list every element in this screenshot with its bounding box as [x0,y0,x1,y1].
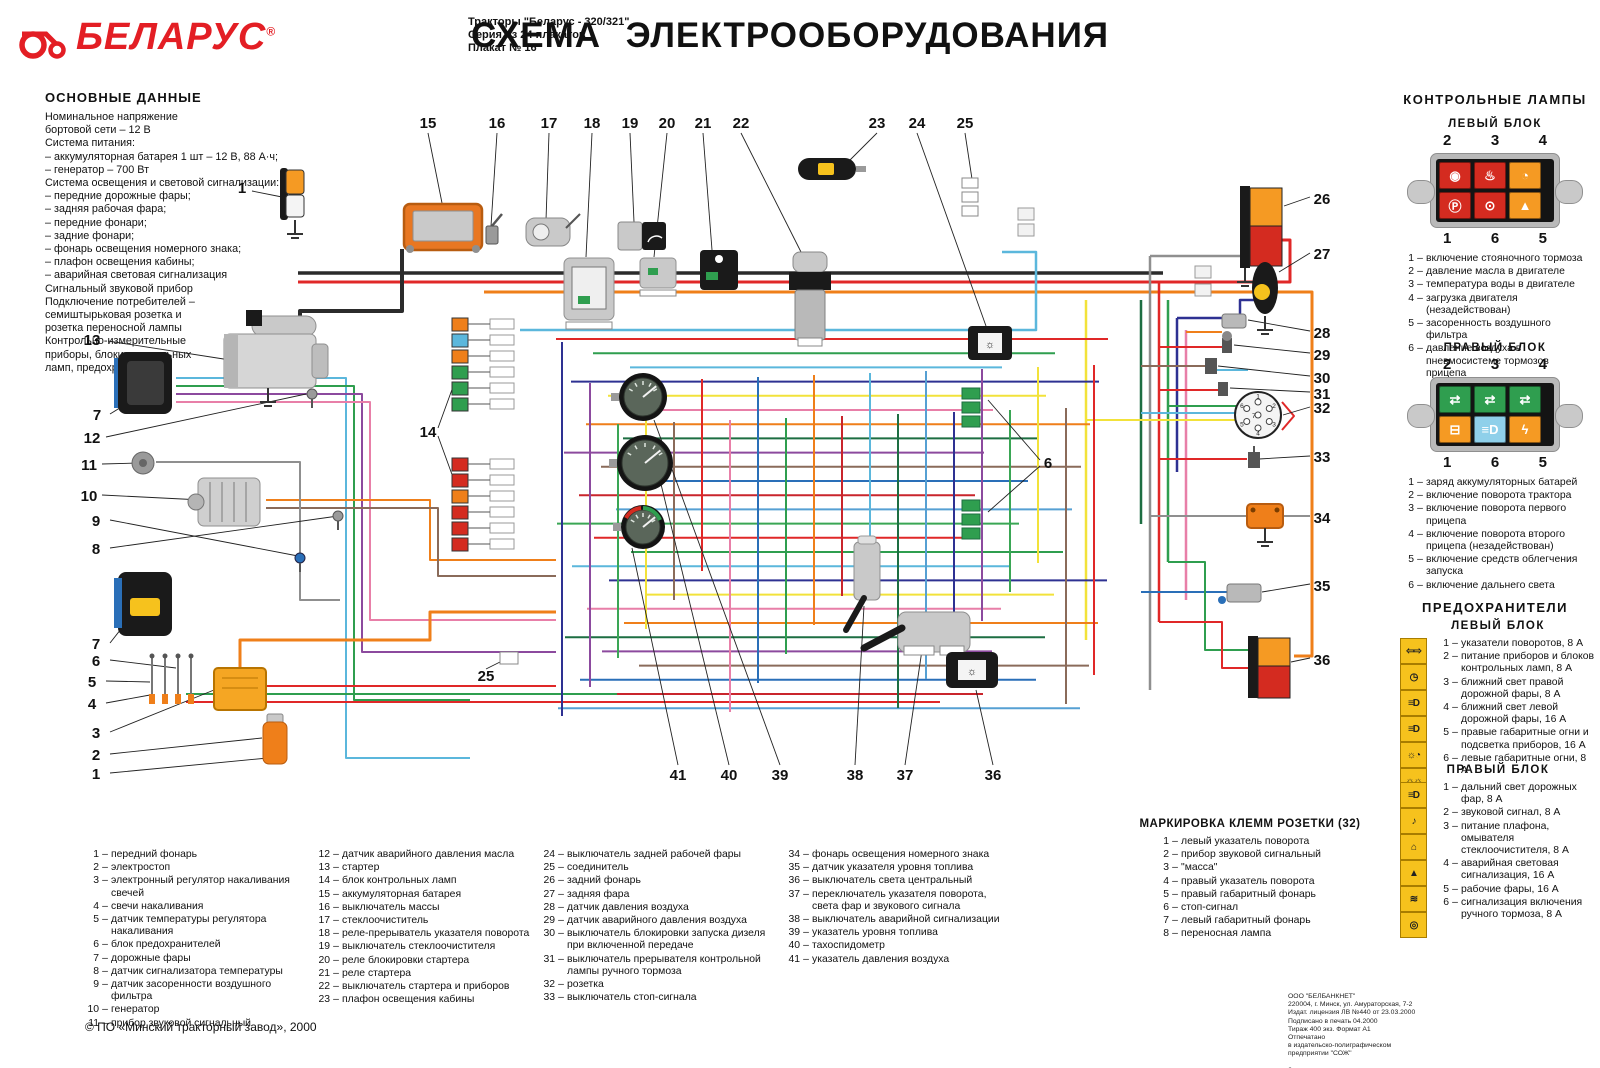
legend-item: 7–левый габаритный фонарь [1155,915,1345,927]
legend-item: 26–задний фонарь [541,875,769,887]
trailer1-turn-lamp: ⇄ [1474,386,1506,413]
legend-item: 32–розетка [541,979,769,991]
legend-item: 6–стоп-сигнал [1155,902,1345,914]
high-beam-lamp: ≡D [1474,416,1506,443]
lamp-number: 3 [1491,356,1499,373]
callout-number: 15 [420,115,437,132]
air-pressure-gauge-41 [613,505,665,549]
callout-number: 3 [92,725,100,742]
cl-left-numbers-bottom: 165 [1443,230,1547,247]
svg-text:1: 1 [1256,394,1260,401]
callout-number: 26 [1314,191,1331,208]
wires [156,240,1312,758]
svg-text:6: 6 [1240,403,1244,410]
legend-item: 34–фонарь освещения номерного знака [786,849,1014,861]
callout-number: 2 [92,747,100,764]
socket-marking-block: МАРКИРОВКА КЛЕММ РОЗЕТКИ (32) 1–левый ук… [1120,818,1380,942]
callout-number: 13 [84,332,101,349]
callout-number: 16 [489,115,506,132]
horn-11 [132,452,154,474]
trailer-air-pressure-lamp: ⊙ [1474,192,1506,219]
lamp-number: 2 [1443,356,1451,373]
lamp-number: 6 [1491,230,1499,247]
legend-item: 3–"масса" [1155,862,1345,874]
gear-lock-switch-30 [1205,358,1217,374]
legend-item: 14–блок контрольных ламп [316,875,544,887]
battery-15 [404,204,482,253]
legend-item: 3–ближний свет правой дорожной фары, 8 А [1435,677,1596,701]
starter-lock-relay-20 [640,258,676,296]
text-line: Издат. лицензия ЛВ №440 от 23.03.2000 [1288,1009,1508,1017]
socket-marking-items: 1–левый указатель поворота2–прибор звуко… [1155,836,1345,941]
legend-item: 1–заряд аккумуляторных батарей [1400,477,1590,489]
lamp-number: 1 [1443,230,1451,247]
callout-number: 23 [869,115,886,132]
harness-connector [1018,208,1034,220]
cl-right-cells: ⇄⇄⇄⊟≡Dϟ [1436,383,1554,446]
legend-col-4: 34–фонарь освещения номерного знака35–да… [786,849,1014,967]
callout-number: 28 [1314,325,1331,342]
fuel-gauge-39 [611,373,667,421]
legend-item: 2–питание приборов и блоков контрольных … [1435,651,1596,675]
socket-32: 1234567 [1235,392,1281,438]
callout-number: 14 [420,424,437,441]
legend-item: 1–передний фонарь [85,849,313,861]
svg-text:2: 2 [1272,403,1276,410]
legend-item: 23–плафон освещения кабины [316,994,544,1006]
legend-item: 35–датчик указателя уровня топлива [786,862,1014,874]
glow-plugs-4 [149,654,194,705]
tractor-turn-lamp: ⇄ [1439,386,1471,413]
svg-text:5: 5 [1240,421,1244,428]
cl-left-numbers-top: 234 [1443,132,1547,149]
svg-text:4: 4 [1256,431,1260,438]
callout-number: 5 [88,674,96,691]
callout-number: 29 [1314,347,1331,364]
text-line: Подписано в печать 04.2000 [1288,1018,1508,1026]
legend-item: 2–давление масла в двигателе [1400,266,1590,278]
legend-item: 37–переключатель указателя поворота, све… [786,889,1014,913]
text-line: Отпечатано [1288,1034,1508,1042]
lamp-number: 6 [1491,454,1499,471]
legend-item: 40–тахоспидометр [786,940,1014,952]
legend-item: 5–правые габаритные огни и подсветка при… [1435,727,1596,751]
legend-item: 31–выключатель прерывателя контрольной л… [541,954,769,978]
legend-item: 28–датчик давления воздуха [541,902,769,914]
callout-number: 7 [92,636,100,653]
control-lamps-right-block: ПРАВЫЙ БЛОК 234 ⇄⇄⇄⊟≡Dϟ 165 1–заряд акку… [1400,342,1590,593]
air-filter-sensor-9 [295,553,305,572]
legend-col-1: 1–передний фонарь2–электростоп3–электрон… [85,849,313,1031]
high-beam-icon: ≡D [1400,782,1427,808]
legend-item: 41–указатель давления воздуха [786,954,1014,966]
harness-connector [1018,224,1034,236]
legend-item: 39–указатель уровня топлива [786,927,1014,939]
brand-logo-text: БЕЛАРУС® [76,18,276,56]
callout-number: 6 [1044,455,1052,472]
callout-number: 41 [670,767,687,784]
text-line: Тираж 400 экз. Формат А1 [1288,1026,1508,1034]
column-switch-37 [864,612,970,655]
legend-item: 8–датчик сигнализатора температуры [85,966,313,978]
svg-text:☼: ☼ [985,339,995,351]
fuses-right-title: ПРАВЫЙ БЛОК [1400,764,1596,776]
brand-header: БЕЛАРУС® [16,12,276,62]
rear-fara-27 [1252,262,1278,334]
legend-item: 19–выключатель стеклоочистителя [316,941,544,953]
stop-signal-switch-33 [1248,446,1260,468]
starter-relay-21 [700,250,738,290]
lamp-number: 3 [1491,132,1499,149]
cl-right-numbers-bottom: 165 [1443,454,1547,471]
fuses-left-title: ЛЕВЫЙ БЛОК [1400,620,1596,632]
hazard-icon: ▲ [1400,860,1427,886]
cl-right-legend: 1–заряд аккумуляторных батарей2–включени… [1400,477,1590,592]
legend-item: 4–свечи накаливания [85,901,313,913]
lamp-number: 4 [1539,132,1547,149]
callout-number: 36 [985,767,1002,784]
water-temp-lamp: ♨ [1474,162,1506,189]
air-filter-lamp: ▲ [1509,192,1541,219]
text-line: в издательско-полиграфическом [1288,1042,1508,1050]
callout-number: 36 [1314,652,1331,669]
legend-item: 4–включение поворота второго прицепа (не… [1400,529,1590,553]
callout-number: 22 [733,115,750,132]
turn-relay-18 [564,258,614,329]
poster-page: БЕЛАРУС® Тракторы "Беларус - 320/321"Сер… [0,0,1600,1068]
text-line: предприятии "СОЖ" [1288,1050,1508,1058]
turn-indicators-icon: ⇦⇨ [1400,638,1427,664]
legend-item: 1–левый указатель поворота [1155,836,1345,848]
road-lamp-7-bottom [114,572,172,636]
legend-item: 36–выключатель света центральный [786,875,1014,887]
legend-item: 38–выключатель аварийной сигнализации [786,914,1014,926]
road-lamp-7-top [114,352,172,414]
legend-item: 16–выключатель массы [316,902,544,914]
callout-number: 25 [957,115,974,132]
legend-col-3: 24–выключатель задней рабочей фары25–сое… [541,849,769,1005]
legend-item: 18–реле-прерыватель указателя поворота [316,928,544,940]
legend-item: 22–выключатель стартера и приборов [316,981,544,993]
rear-worklamp-switch-24: ☼ [968,326,1012,360]
legend-col-2: 12–датчик аварийного давления масла13–ст… [316,849,544,1007]
legend-item: 6–сигнализация включения ручного тормоза… [1435,897,1596,921]
legend-item: 4–правый указатель поворота [1155,876,1345,888]
legend-item: 10–генератор [85,1004,313,1016]
oil-pressure-lamp: ◉ [1439,162,1471,189]
belarus-tractor-logo-icon [16,12,70,62]
callout-number: 19 [622,115,639,132]
oil-pressure-sensor-12 [307,389,317,408]
callout-number: 11 [81,457,97,474]
connector-25-bottom [500,652,518,664]
callout-number: 4 [88,696,97,713]
legend-item: 27–задняя фара [541,889,769,901]
legend-item: 3–электронный регулятор накаливания свеч… [85,875,313,899]
svg-text:7: 7 [1252,413,1256,420]
publisher-block: ООО "БЕЛБАНКНЕТ"220004, г. Минск, ул. Ам… [1288,993,1508,1068]
legend-item: 2–электростоп [85,862,313,874]
callout-number: 27 [1314,246,1331,263]
callout-number: 33 [1314,449,1331,466]
legend-item: 2–звуковой сигнал, 8 А [1435,807,1596,819]
lamp-number: 5 [1539,230,1547,247]
callout-number: 32 [1314,400,1331,417]
legend-item: 30–выключатель блокировки запуска дизеля… [541,928,769,952]
control-lamp-block-14 [452,318,514,551]
wiper-17 [526,214,580,246]
engine-load-lamp: ◔ [1509,162,1541,189]
callout-number: 35 [1314,578,1331,595]
legend-item: 4–аварийная световая сигнализация, 16 А [1435,858,1596,882]
legend-item: 17–стеклоочиститель [316,915,544,927]
legend-item: 33–выключатель стоп-сигнала [541,992,769,1004]
legend-item: 20–реле блокировки стартера [316,955,544,967]
low-beam-right-icon: ≡D [1400,690,1427,716]
legend-item: 8–переносная лампа [1155,928,1345,940]
text-line: 220004, г. Минск, ул. Амураторская, 7-2 [1288,1001,1508,1009]
cl-right-title: ПРАВЫЙ БЛОК [1400,342,1590,354]
callout-number: 1 [238,180,246,197]
fuse-connectors-6-right [962,388,980,539]
fuses-right-block: ПРАВЫЙ БЛОК ≡D♪⌂▲≋◎ 1–дальний свет дорож… [1400,764,1596,938]
cl-left-title: ЛЕВЫЙ БЛОК [1400,118,1590,130]
fuses-title: ПРЕДОХРАНИТЕЛИ [1395,600,1595,615]
legend-item: 7–дорожные фары [85,953,313,965]
work-lights-icon: ≋ [1400,886,1427,912]
legend-item: 5–датчик температуры регулятора накалива… [85,914,313,938]
horn-icon: ♪ [1400,808,1427,834]
control-lamps-title: КОНТРОЛЬНЫЕ ЛАМПЫ [1395,92,1595,107]
callout-number: 6 [92,653,100,670]
key-switch-22 [789,252,831,346]
text-line [1288,1059,1508,1067]
legend-item: 24–выключатель задней рабочей фары [541,849,769,861]
harness-connector [1195,266,1211,278]
low-beam-left-icon: ≡D [1400,716,1427,742]
legend-item: 1–дальний свет дорожных фар, 8 А [1435,782,1596,806]
legend-item: 13–стартер [316,862,544,874]
central-light-switch-36: ☼ [946,652,998,688]
callout-number: 20 [659,115,676,132]
legend-item: 4–ближний свет левой дорожной фары, 16 А [1435,702,1596,726]
callout-number: 8 [92,541,100,558]
callout-number: 17 [541,115,558,132]
cl-right-numbers-top: 234 [1443,356,1547,373]
callout-number: 12 [84,430,101,447]
callout-number: 25 [478,668,495,685]
svg-text:☼: ☼ [967,666,977,678]
callout-numbers: 1516171819202122232425113712111098765432… [81,115,1331,784]
ground-switch-16 [486,214,502,244]
callout-number: 24 [909,115,926,132]
lamp-number: 4 [1539,356,1547,373]
dome-light-icon: ⌂ [1400,834,1427,860]
trailer2-turn-lamp: ⇄ [1509,386,1541,413]
callout-number: 7 [93,407,101,424]
legend-item: 25–соединитель [541,862,769,874]
legend-item: 6–блок предохранителей [85,939,313,951]
callout-number: 9 [92,513,100,530]
legend-item: 1–указатели поворотов, 8 А [1435,638,1596,650]
temp-sensor-8 [333,511,343,530]
poster-title: СХЕМА ЭЛЕКТРООБОРУДОВАНИЯ [420,16,1160,56]
callout-number: 40 [721,767,738,784]
cl-left-cells: ◉♨◔Ⓟ⊙▲ [1436,159,1554,222]
legend-item: 5–рабочие фары, 16 А [1435,884,1596,896]
callout-number: 34 [1314,510,1331,527]
callout-number: 10 [81,488,98,505]
callout-number: 37 [897,767,914,784]
rear-lamp-36 [1248,636,1290,698]
fuses-right-strip: ≡D♪⌂▲≋◎ [1400,782,1427,938]
handbrake-lamp-switch-31 [1218,382,1228,396]
legend-item: 5–включение средств облегчения запуска [1400,554,1590,578]
legend-item: 3–питание плафона, омывателя стеклоочист… [1435,821,1596,858]
svg-text:3: 3 [1272,421,1276,428]
legend-item: 5–правый габаритный фонарь [1155,889,1345,901]
legend-item: 3–температура воды в двигателе [1400,279,1590,291]
generator-10 [188,478,260,526]
connectors-25-top [962,178,978,216]
wiring-diagram: ☼☼12345671516171819202122232425113712111… [75,105,1405,810]
copyright-footer: © ПО «Минский тракторный завод», 2000 [85,1020,317,1034]
callout-number: 39 [772,767,789,784]
battery-charge-lamp: ⊟ [1439,416,1471,443]
cab-light-23 [798,158,866,180]
callout-number: 18 [584,115,601,132]
callout-number: 30 [1314,370,1331,387]
instruments-icon: ◷ [1400,664,1427,690]
legend-item: 29–датчик аварийного давления воздуха [541,915,769,927]
legend-item: 12–датчик аварийного давления масла [316,849,544,861]
fuel-level-sensor-35 [1218,584,1261,604]
glow-regulator-3 [214,668,266,710]
lamp-number: 2 [1443,132,1451,149]
legend-item: 2–прибор звуковой сигнальный [1155,849,1345,861]
registered-mark: ® [266,24,276,38]
wiper-switch-19 [618,222,666,250]
cl-left-lamp-unit: ◉♨◔Ⓟ⊙▲ [1430,153,1560,228]
lamp-number: 1 [1443,454,1451,471]
lamp-number: 5 [1539,454,1547,471]
legend-item: 4–загрузка двигателя (незадействован) [1400,293,1590,317]
fuses-right-legend: 1–дальний свет дорожных фар, 8 А2–звуков… [1435,782,1596,938]
legend-item: 1–включение стояночного тормоза [1400,253,1590,265]
legend-item: 6–включение дальнего света [1400,580,1590,592]
callout-number: 38 [847,767,864,784]
plate-lamp-34 [1247,504,1283,546]
socket-marking-title: МАРКИРОВКА КЛЕММ РОЗЕТКИ (32) [1120,818,1380,830]
legend-item: 3–включение поворота первого прицепа [1400,503,1590,527]
callout-number: 1 [92,766,100,783]
legend-item: 2–включение поворота трактора [1400,490,1590,502]
legend-item: 21–реле стартера [316,968,544,980]
park-brake-icon: ◎ [1400,912,1427,938]
legend-item: 9–датчик засоренности воздушного фильтра [85,979,313,1003]
legend-item: 5–засоренность воздушного фильтра [1400,318,1590,342]
text-line: ООО "БЕЛБАНКНЕТ" [1288,993,1508,1001]
main-data-title: ОСНОВНЫЕ ДАННЫЕ [45,90,283,105]
parking-brake-lamp: Ⓟ [1439,192,1471,219]
electrostop-2 [263,714,287,764]
callout-number: 21 [695,115,712,132]
legend-item: 15–аккумуляторная батарея [316,889,544,901]
front-lamp-1 [280,168,304,238]
air-pressure-sensor-28 [1222,314,1246,328]
glow-plug-lamp: ϟ [1509,416,1541,443]
air-alarm-sensor-29 [1222,331,1232,353]
harness-connector [1195,284,1211,296]
cl-right-lamp-unit: ⇄⇄⇄⊟≡Dϟ [1430,377,1560,452]
